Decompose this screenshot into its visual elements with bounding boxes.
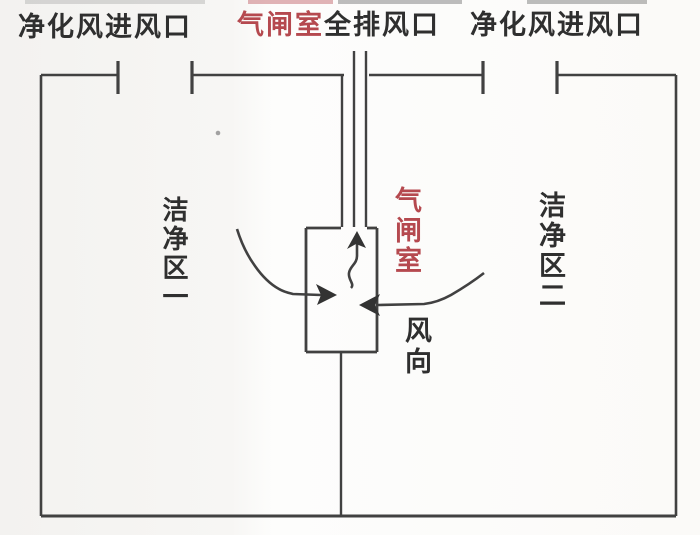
label-airlock-exhaust-black-part: 全排风口 [324, 10, 440, 40]
stray-dot-artifact [216, 131, 221, 136]
label-wind-direction: 风向 [402, 316, 429, 378]
schematic-line-art [0, 0, 700, 535]
top-edge-smear-4 [527, 0, 647, 4]
airflow-path-right [378, 273, 484, 305]
label-airlock-room: 气闸室 [392, 186, 419, 276]
top-edge-smear-1 [25, 0, 205, 4]
top-edge-smear-3 [338, 0, 462, 4]
label-clean-zone-2: 洁净区二 [536, 191, 563, 311]
top-edge-smear-2 [248, 0, 333, 4]
label-right-purified-air-inlet: 净化风进风口 [470, 12, 644, 39]
label-left-purified-air-inlet: 净化风进风口 [18, 14, 192, 41]
label-airlock-exhaust-red-part: 气闸室 [237, 10, 324, 40]
label-airlock-exhaust-vent: 气闸室全排风口 [237, 12, 440, 39]
label-clean-zone-1: 洁净区一 [161, 196, 187, 312]
airflow-path-left [237, 229, 321, 295]
diagram-canvas: 净化风进风口 气闸室全排风口 净化风进风口 洁净区一 气闸室 洁净区二 风向 [0, 0, 700, 535]
